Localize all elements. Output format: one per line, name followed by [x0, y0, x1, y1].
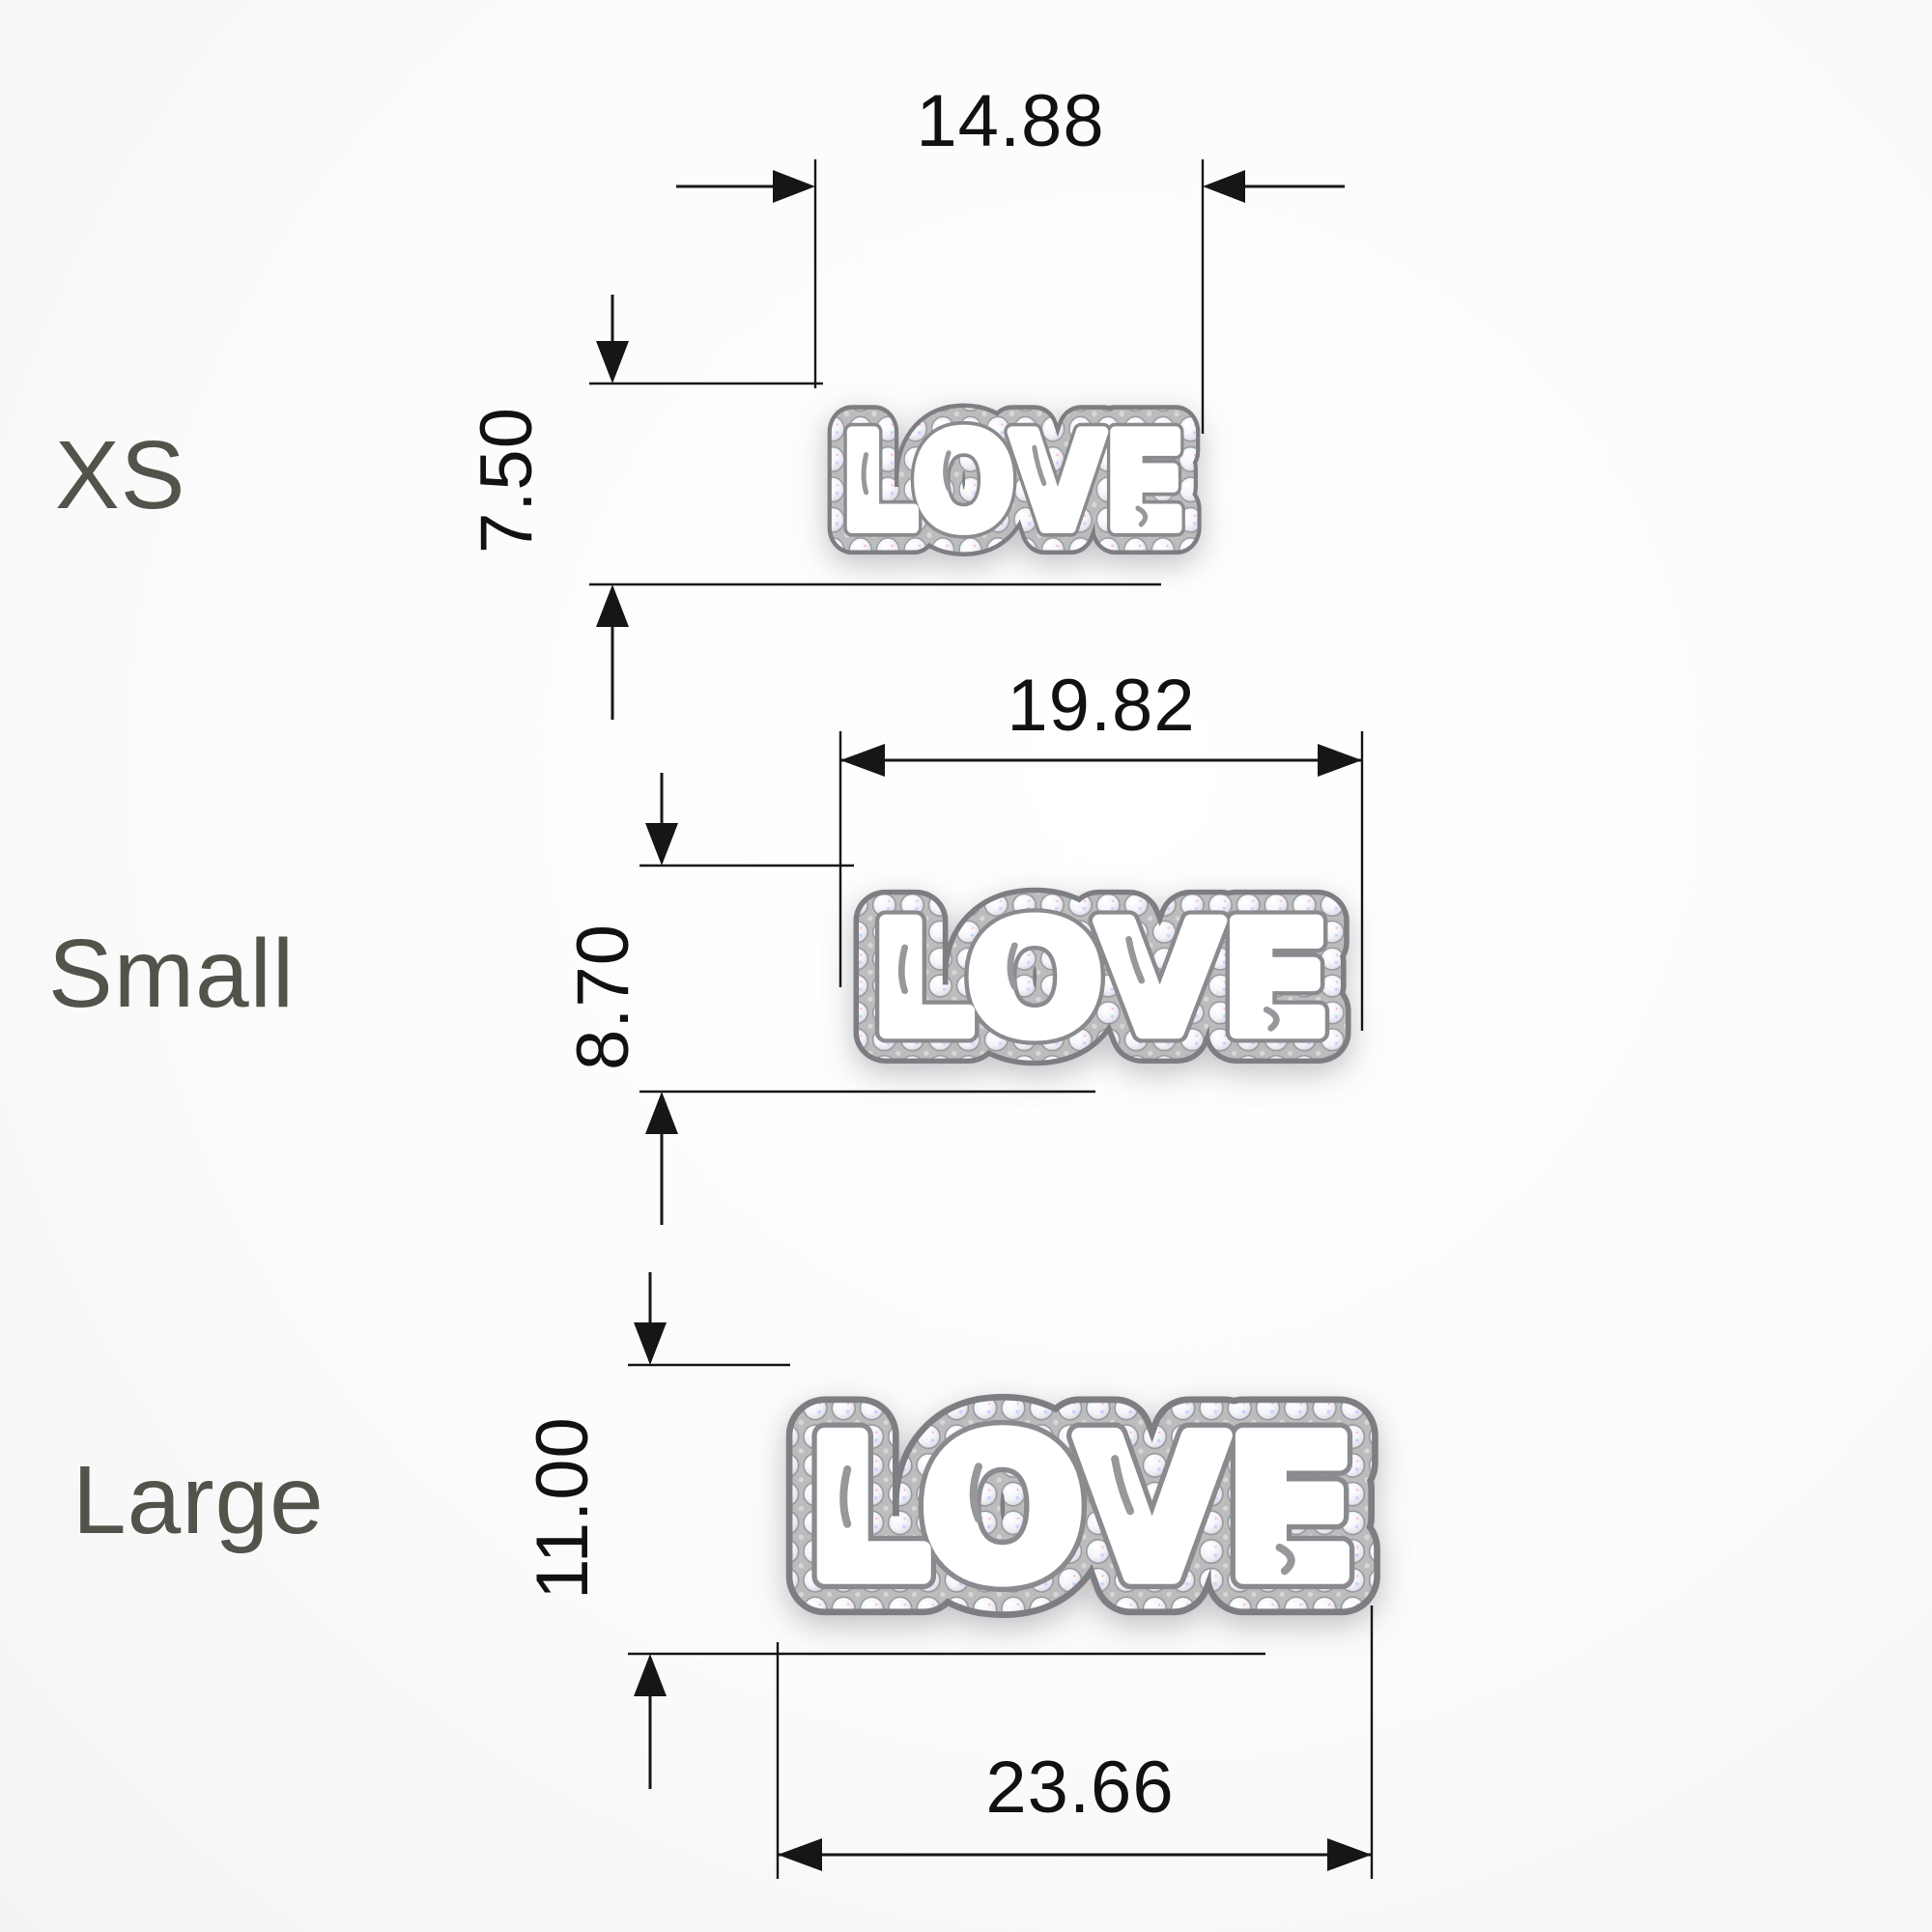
small-height-value: 8.70: [567, 923, 640, 1070]
small-width-arrow-right-icon: [1318, 744, 1362, 777]
gloss-mark: [901, 948, 904, 991]
charm-xs-letters: LOVE: [840, 406, 1185, 559]
small-height-arrow-bottom-icon: [645, 1092, 678, 1134]
large-width-arrow-right-icon: [1327, 1838, 1372, 1871]
xs-height-value: 7.50: [470, 407, 544, 554]
large-width-arrow-left-icon: [778, 1838, 822, 1871]
large-height-value: 11.00: [526, 1416, 600, 1600]
large-height-arrow-bottom-icon: [634, 1654, 667, 1696]
small-height-arrow-top-icon: [645, 823, 678, 866]
charm-large: LOVE LOVE LOVE LOVE: [773, 1365, 1390, 1652]
size-label-small: Small: [48, 925, 295, 1022]
gloss-mark: [864, 455, 867, 493]
large-height-arrow-top-icon: [634, 1322, 667, 1365]
xs-height-arrow-bottom-icon: [596, 584, 629, 627]
xs-height-arrow-top-icon: [596, 341, 629, 384]
large-width-value: 23.66: [985, 1751, 1174, 1825]
charm-large-letters: LOVE: [808, 1397, 1356, 1622]
size-label-xs: XS: [55, 427, 185, 524]
small-width-arrow-left-icon: [840, 744, 885, 777]
gloss-mark: [843, 1469, 847, 1524]
xs-width-arrow-left-icon: [773, 170, 815, 203]
small-width-value: 19.82: [1007, 669, 1195, 743]
size-label-large: Large: [72, 1452, 325, 1548]
xs-width-arrow-right-icon: [1203, 170, 1245, 203]
charm-xs: LOVE LOVE LOVE LOVE: [819, 384, 1207, 580]
size-comparison-diagram: XS Small Large 14.88 7.50 19.82 8.70 11.…: [0, 0, 1932, 1932]
xs-width-value: 14.88: [916, 85, 1104, 158]
charm-small-letters: LOVE: [871, 892, 1330, 1069]
charm-small: LOVE LOVE LOVE LOVE: [842, 865, 1359, 1093]
